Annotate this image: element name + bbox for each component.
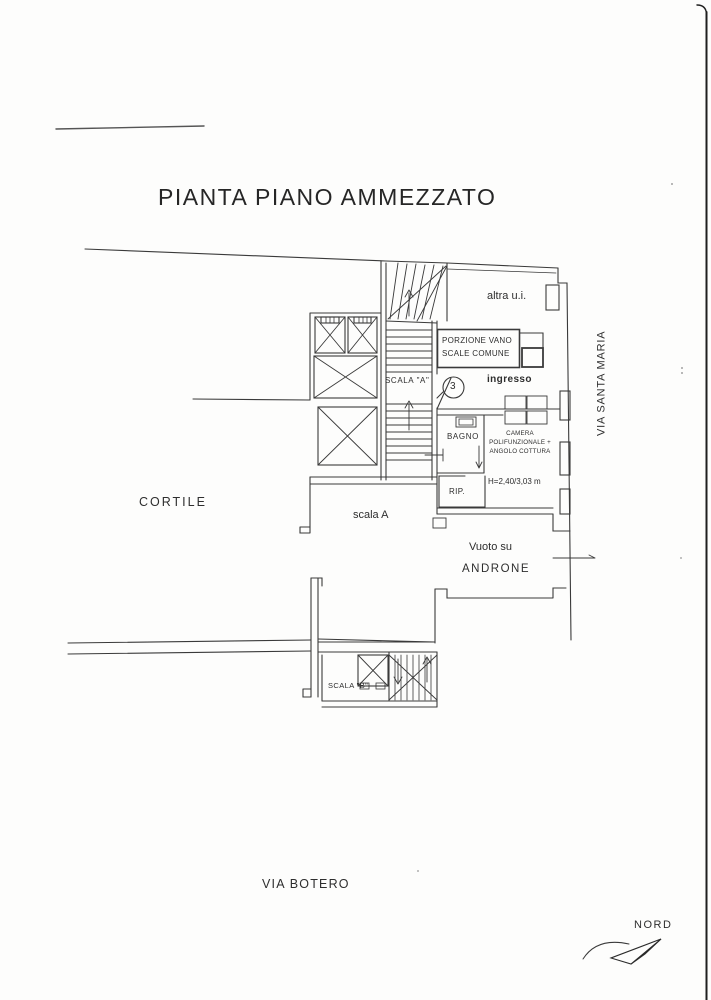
scan-edge-line — [697, 5, 707, 1000]
page-title: PIANTA PIANO AMMEZZATO — [158, 184, 496, 210]
room-label-bagno: BAGNO — [447, 432, 479, 441]
room-label-ingresso: ingresso — [487, 374, 532, 386]
north-arrow-icon — [583, 939, 661, 964]
street-label-via-botero: VIA BOTERO — [262, 877, 350, 891]
camera-line-2: POLIFUNZIONALE + — [483, 438, 557, 447]
void-walls — [318, 518, 595, 643]
elevator-shafts — [193, 313, 381, 465]
room-label-porzione: PORZIONE VANO SCALE COMUNE — [442, 334, 512, 360]
room-label-altra-ui: altra u.i. — [487, 290, 526, 303]
floorplan-drawing — [0, 0, 711, 1000]
camera-line-3: ANGOLO COTTURA — [483, 447, 557, 456]
ceiling-height-label: H=2,40/3,03 m — [488, 477, 541, 486]
courtyard-label: CORTILE — [139, 495, 207, 509]
stair-a-shaft-label: SCALA "A" — [385, 376, 429, 385]
void-label-line-1: Vuoto su — [469, 541, 512, 554]
porzione-line-2: SCALE COMUNE — [442, 347, 512, 360]
porzione-line-1: PORZIONE VANO — [442, 334, 512, 347]
camera-line-1: CAMERA — [483, 429, 557, 438]
scanned-floorplan-page: PIANTA PIANO AMMEZZATO altra u.i. PORZIO… — [0, 0, 711, 1000]
stair-b-label: SCALA "B" — [328, 682, 368, 691]
street-label-via-santa-maria: VIA SANTA MARIA — [596, 328, 609, 438]
stair-a-label: scala A — [353, 509, 388, 522]
corridor-walls — [68, 578, 435, 697]
kitchen-fixtures — [505, 396, 547, 424]
stairwell-b — [318, 652, 437, 707]
void-label-line-2: ANDRONE — [462, 563, 530, 576]
room-label-rip: RIP. — [449, 487, 465, 496]
camera-walls — [437, 508, 570, 531]
stairwell-a — [300, 261, 447, 533]
unit-number: 3 — [450, 381, 456, 393]
room-label-camera: CAMERA POLIFUNZIONALE + ANGOLO COTTURA — [483, 429, 557, 456]
north-label: NORD — [634, 919, 672, 932]
